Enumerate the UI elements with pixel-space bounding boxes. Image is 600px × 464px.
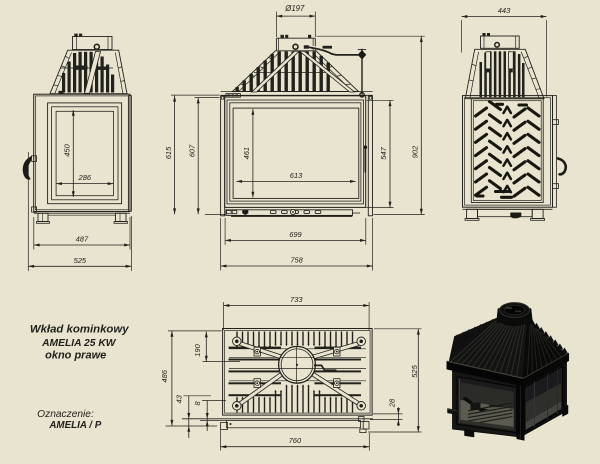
svg-text:547: 547 xyxy=(379,146,388,159)
svg-text:525: 525 xyxy=(74,256,87,265)
svg-text:615: 615 xyxy=(164,146,173,159)
svg-text:733: 733 xyxy=(290,295,303,304)
svg-text:28: 28 xyxy=(388,398,397,408)
svg-text:190: 190 xyxy=(193,343,202,356)
svg-text:Oznaczenie:: Oznaczenie: xyxy=(37,409,94,420)
svg-text:43: 43 xyxy=(174,394,183,403)
svg-text:699: 699 xyxy=(289,230,302,239)
svg-text:okno prawe: okno prawe xyxy=(45,350,106,362)
svg-text:450: 450 xyxy=(62,143,71,156)
svg-text:286: 286 xyxy=(78,173,92,182)
svg-text:607: 607 xyxy=(187,144,196,157)
svg-text:758: 758 xyxy=(290,256,303,265)
svg-text:487: 487 xyxy=(76,235,89,244)
svg-text:AMELIA 25 KW: AMELIA 25 KW xyxy=(41,338,117,349)
svg-text:Wkład kominkowy: Wkład kominkowy xyxy=(30,324,129,336)
svg-text:760: 760 xyxy=(289,436,302,445)
svg-text:461: 461 xyxy=(242,147,251,160)
svg-text:613: 613 xyxy=(290,171,303,180)
svg-text:902: 902 xyxy=(411,145,420,158)
svg-text:Ø197: Ø197 xyxy=(284,4,305,13)
svg-text:AMELIA / P: AMELIA / P xyxy=(48,420,101,431)
svg-text:486: 486 xyxy=(160,369,169,382)
svg-text:443: 443 xyxy=(498,6,511,15)
svg-text:525: 525 xyxy=(410,364,419,377)
